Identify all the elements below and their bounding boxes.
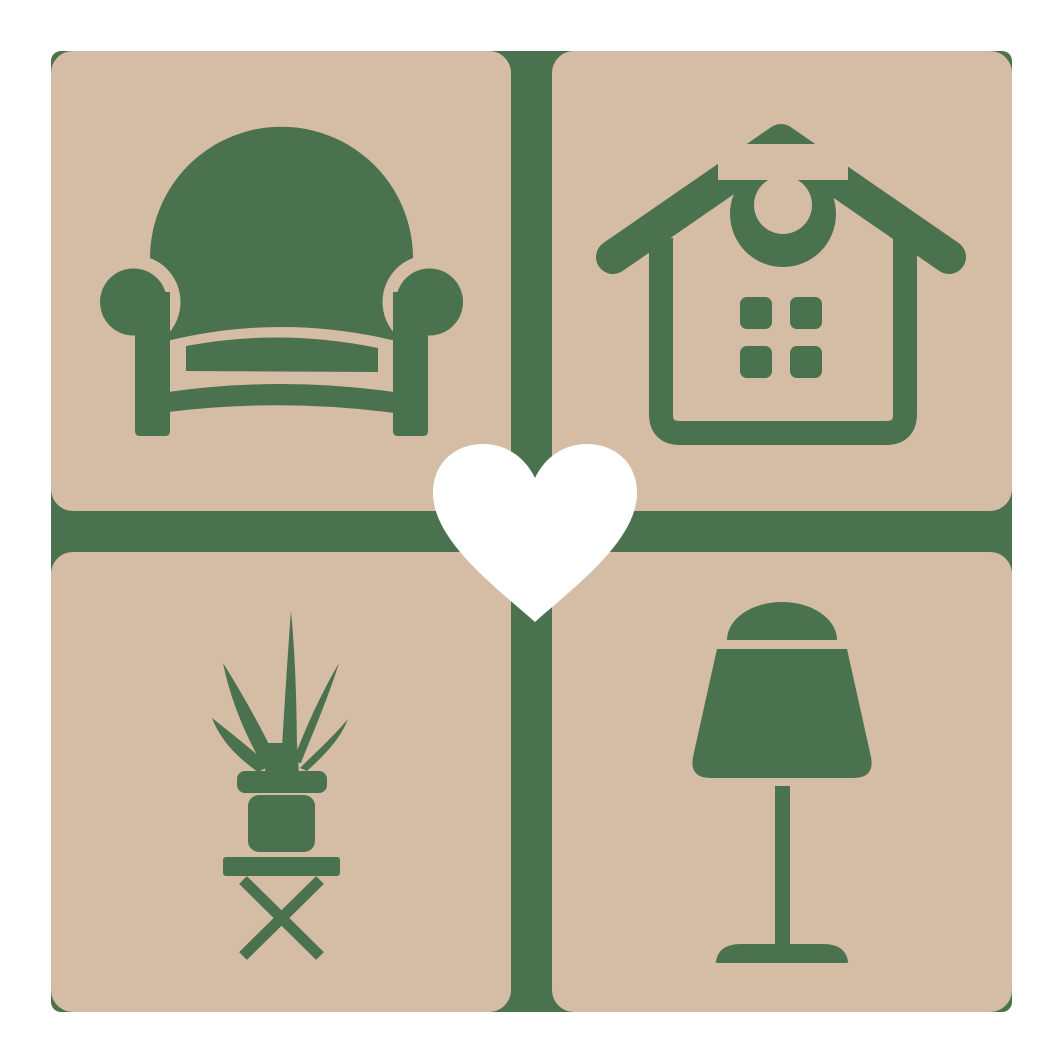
home-decor-logo — [0, 0, 1063, 1063]
tile-lamp — [552, 552, 1012, 1012]
tile-plant — [51, 552, 511, 1012]
tile-armchair — [51, 51, 511, 511]
tile-house — [552, 51, 1012, 511]
